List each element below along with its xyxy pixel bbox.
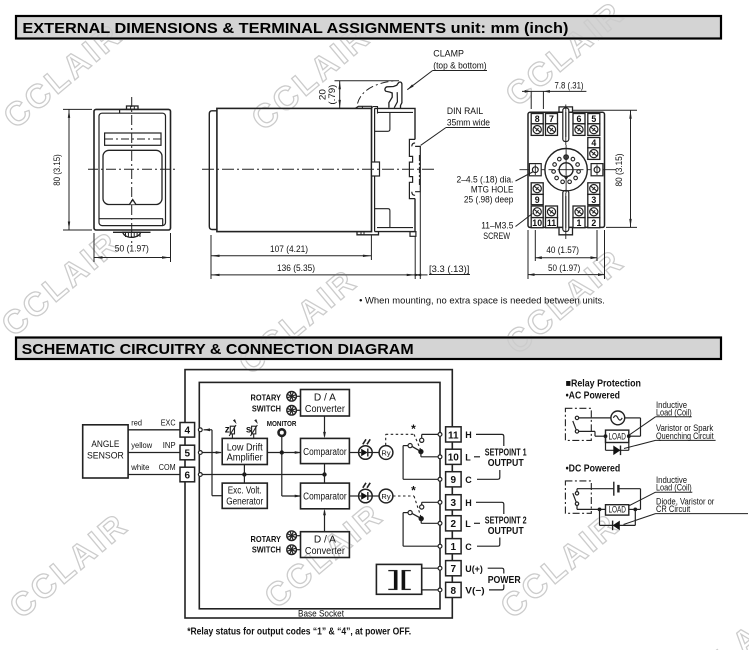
svg-text:ROTARY: ROTARY — [251, 534, 282, 544]
svg-text:COM: COM — [159, 462, 176, 472]
svg-text:•DC Powered: •DC Powered — [566, 464, 621, 475]
svg-text:ANGLE: ANGLE — [91, 439, 119, 450]
svg-text:(.79): (.79) — [327, 85, 337, 105]
svg-text:•AC Powered: •AC Powered — [566, 390, 620, 401]
svg-text:MONITOR: MONITOR — [267, 419, 297, 428]
svg-text:white: white — [130, 462, 149, 472]
svg-text:LOAD: LOAD — [608, 505, 626, 515]
svg-text:Amplifier: Amplifier — [227, 452, 264, 463]
svg-text:11–M3.5: 11–M3.5 — [481, 221, 513, 231]
svg-text:Load (Coil): Load (Coil) — [656, 407, 692, 417]
svg-text:CLAMP: CLAMP — [433, 49, 464, 59]
svg-text:*: * — [411, 484, 416, 498]
svg-text:C: C — [465, 475, 472, 486]
svg-text:8: 8 — [451, 586, 457, 597]
svg-text:MTG HOLE: MTG HOLE — [471, 185, 514, 195]
svg-text:SCHEMATIC CIRCUITRY & CONNECTI: SCHEMATIC CIRCUITRY & CONNECTION DIAGRAM — [22, 342, 414, 358]
svg-text:Generator: Generator — [226, 497, 264, 508]
svg-text:1: 1 — [451, 542, 457, 553]
svg-text:SWITCH: SWITCH — [252, 545, 281, 555]
svg-text:z: z — [225, 425, 230, 436]
svg-text:SWITCH: SWITCH — [252, 403, 281, 413]
svg-text:2–4.5 (.18) dia.: 2–4.5 (.18) dia. — [457, 175, 514, 185]
svg-text:red: red — [131, 417, 142, 427]
svg-text:OUTPUT: OUTPUT — [488, 458, 524, 469]
svg-text:OUTPUT: OUTPUT — [488, 526, 524, 537]
svg-text:11: 11 — [448, 430, 459, 441]
svg-text:L: L — [465, 452, 471, 463]
svg-text:5: 5 — [185, 448, 191, 459]
svg-text:136 (5.35): 136 (5.35) — [277, 263, 315, 273]
svg-text:SENSOR: SENSOR — [87, 451, 124, 462]
svg-text:SCREW: SCREW — [483, 231, 510, 241]
svg-text:L: L — [465, 519, 471, 530]
svg-text:LOAD: LOAD — [608, 431, 626, 441]
svg-text:D / A: D / A — [314, 392, 336, 403]
svg-text:H: H — [465, 498, 472, 509]
svg-text:4: 4 — [591, 138, 596, 148]
svg-text:(top & bottom): (top & bottom) — [433, 60, 486, 70]
svg-text:2: 2 — [451, 519, 457, 530]
svg-text:9: 9 — [535, 195, 540, 205]
svg-text:s: s — [246, 425, 252, 436]
svg-text:Quenching Circuit: Quenching Circuit — [656, 431, 714, 441]
svg-text:Base Socket: Base Socket — [298, 608, 344, 618]
svg-text:yellow: yellow — [131, 440, 153, 450]
svg-text:10: 10 — [448, 453, 460, 464]
svg-text:1: 1 — [577, 218, 582, 228]
svg-text:*Relay status for output codes: *Relay status for output codes “1” & “4”… — [187, 627, 411, 638]
svg-text:7: 7 — [451, 564, 457, 575]
svg-text:Ry: Ry — [381, 449, 390, 458]
svg-text:2: 2 — [591, 218, 596, 228]
svg-text:7: 7 — [549, 114, 554, 124]
svg-text:INP: INP — [163, 440, 176, 450]
svg-text:CR Circuit: CR Circuit — [656, 504, 691, 514]
svg-text:U(+): U(+) — [465, 564, 483, 575]
svg-text:10: 10 — [532, 218, 542, 228]
svg-text:11: 11 — [547, 218, 556, 228]
svg-text:V(−): V(−) — [465, 586, 484, 597]
svg-text:EXC: EXC — [161, 417, 176, 427]
svg-text:C: C — [465, 542, 472, 553]
svg-text:SETPOINT 2: SETPOINT 2 — [485, 516, 527, 527]
svg-text:[3.3 (.13)]: [3.3 (.13)] — [429, 264, 469, 274]
svg-text:Comparator: Comparator — [303, 447, 347, 458]
svg-text:40 (1.57): 40 (1.57) — [546, 245, 579, 255]
svg-text:9: 9 — [451, 475, 457, 486]
svg-text:25 (.98) deep: 25 (.98) deep — [464, 195, 514, 205]
svg-text:3: 3 — [591, 195, 596, 205]
svg-text:8: 8 — [535, 114, 540, 124]
svg-text:Load (Coil): Load (Coil) — [656, 483, 692, 493]
svg-text:H: H — [465, 430, 472, 441]
svg-text:4: 4 — [185, 426, 191, 437]
svg-text:35mm wide: 35mm wide — [447, 118, 490, 128]
svg-text:Converter: Converter — [305, 404, 346, 415]
svg-text:*: * — [411, 422, 416, 436]
svg-text:ROTARY: ROTARY — [251, 393, 282, 403]
svg-text:Exc. Volt.: Exc. Volt. — [228, 486, 262, 497]
svg-text:6: 6 — [185, 470, 191, 481]
svg-text:6: 6 — [577, 114, 582, 124]
svg-text:Comparator: Comparator — [303, 492, 347, 503]
svg-text:80 (3.15): 80 (3.15) — [52, 154, 62, 186]
svg-text:80 (3.15): 80 (3.15) — [614, 154, 624, 187]
svg-text:■Relay Protection: ■Relay Protection — [566, 379, 641, 390]
svg-text:107 (4.21): 107 (4.21) — [270, 244, 308, 254]
svg-text:SETPOINT 1: SETPOINT 1 — [485, 447, 527, 458]
svg-text:DIN RAIL: DIN RAIL — [447, 106, 483, 116]
svg-text:Ry: Ry — [381, 492, 390, 501]
svg-text:3: 3 — [451, 498, 457, 509]
svg-text:5: 5 — [591, 114, 596, 124]
